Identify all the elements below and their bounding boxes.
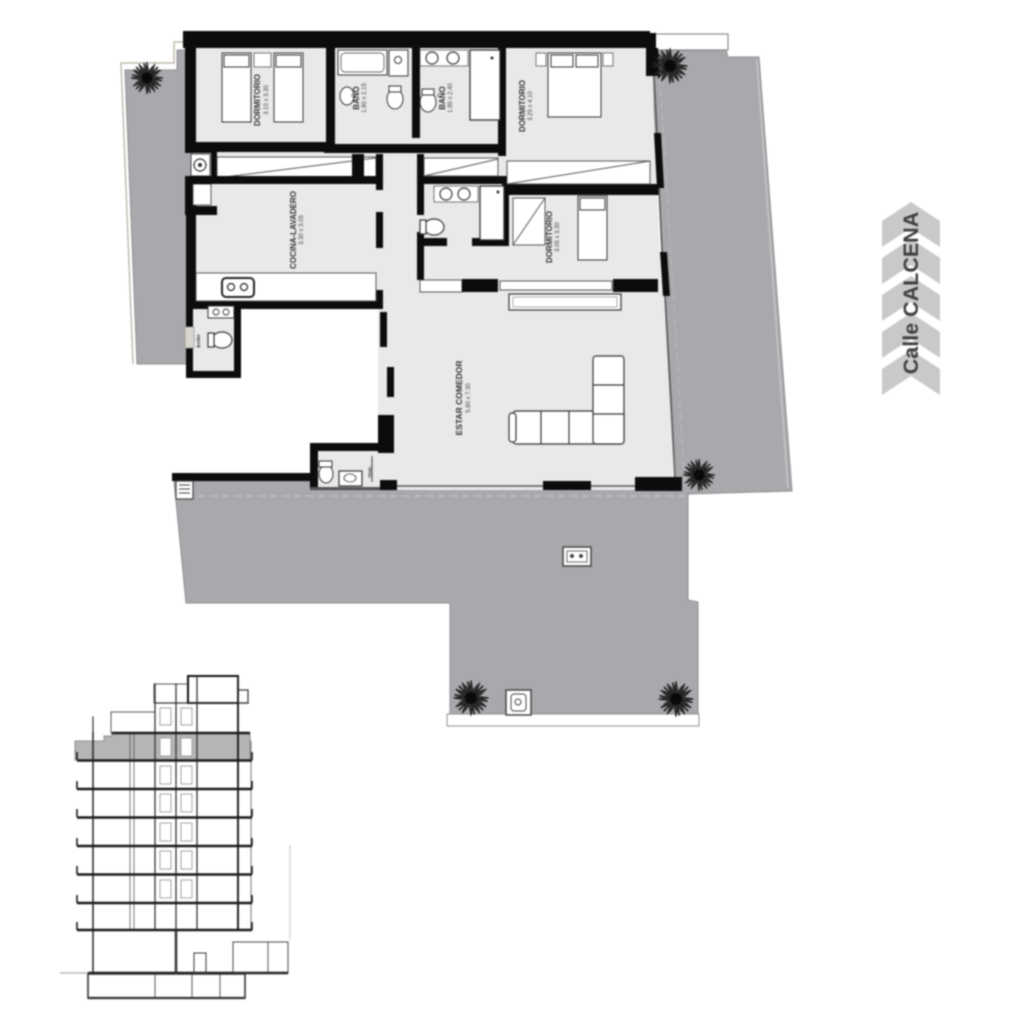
svg-text:BAÑO: BAÑO (438, 86, 447, 110)
svg-text:Calle CALCENA: Calle CALCENA (899, 212, 923, 374)
svg-text:3.25 x 4.10: 3.25 x 4.10 (528, 90, 534, 120)
svg-text:3.05 x 3.30: 3.05 x 3.30 (555, 221, 561, 251)
svg-text:DORMITORIO: DORMITORIO (545, 211, 554, 263)
svg-text:1.80 x 2.15: 1.80 x 2.15 (362, 82, 368, 112)
svg-text:3.30 x 3.05: 3.30 x 3.05 (299, 214, 305, 244)
svg-text:COCINA-LAVADERO: COCINA-LAVADERO (289, 191, 298, 269)
svg-text:BAÑO: BAÑO (195, 334, 201, 348)
svg-text:TEND.: TEND. (367, 466, 372, 478)
svg-text:BAÑO: BAÑO (352, 86, 361, 110)
svg-text:1.85 x 2.40: 1.85 x 2.40 (448, 82, 454, 112)
svg-text:5.80 x 7.30: 5.80 x 7.30 (466, 382, 472, 412)
svg-text:ESTAR COMEDOR: ESTAR COMEDOR (454, 361, 464, 436)
svg-text:DORMITORIO: DORMITORIO (518, 80, 527, 132)
svg-text:3.10 x 3.30: 3.10 x 3.30 (264, 84, 270, 114)
svg-text:DORMITORIO: DORMITORIO (253, 74, 262, 126)
